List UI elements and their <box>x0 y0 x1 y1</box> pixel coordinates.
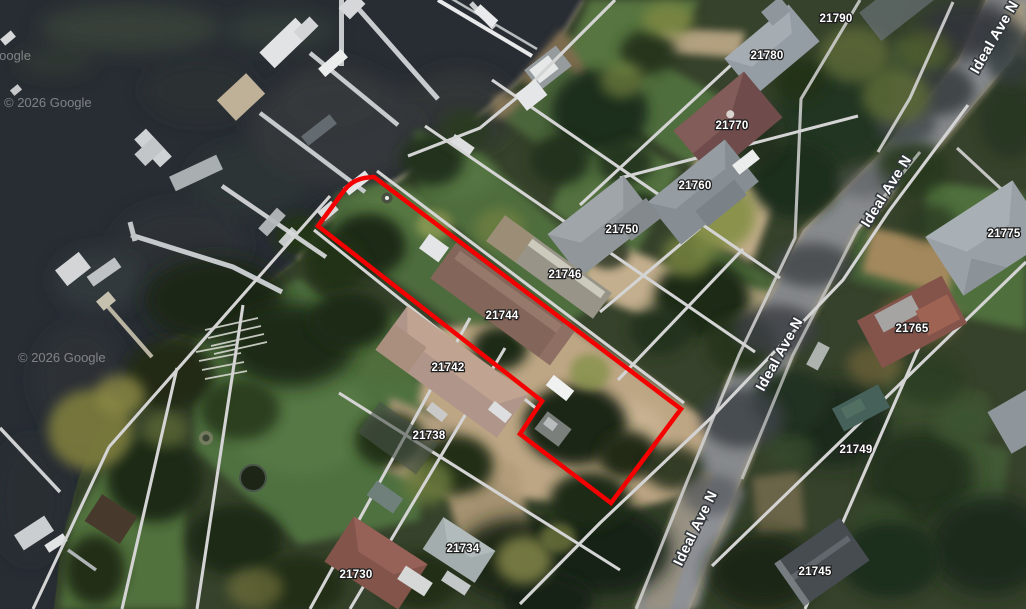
svg-text:© 2026 Google: © 2026 Google <box>18 350 106 365</box>
svg-text:21770: 21770 <box>716 120 749 132</box>
svg-text:21750: 21750 <box>606 224 639 236</box>
svg-text:21790: 21790 <box>820 13 853 25</box>
svg-text:21745: 21745 <box>799 566 832 578</box>
svg-text:21746: 21746 <box>549 269 582 281</box>
svg-text:21730: 21730 <box>340 569 373 581</box>
svg-text:21775: 21775 <box>988 228 1021 240</box>
svg-text:Google: Google <box>0 48 31 63</box>
svg-text:21749: 21749 <box>840 444 873 456</box>
svg-text:21738: 21738 <box>413 430 446 442</box>
svg-text:21780: 21780 <box>751 50 784 62</box>
svg-text:21744: 21744 <box>486 310 519 322</box>
svg-text:21765: 21765 <box>896 323 929 335</box>
svg-text:21760: 21760 <box>679 180 712 192</box>
svg-text:21742: 21742 <box>432 362 465 374</box>
svg-text:© 2026 Google: © 2026 Google <box>4 95 92 110</box>
svg-text:21734: 21734 <box>447 543 480 555</box>
